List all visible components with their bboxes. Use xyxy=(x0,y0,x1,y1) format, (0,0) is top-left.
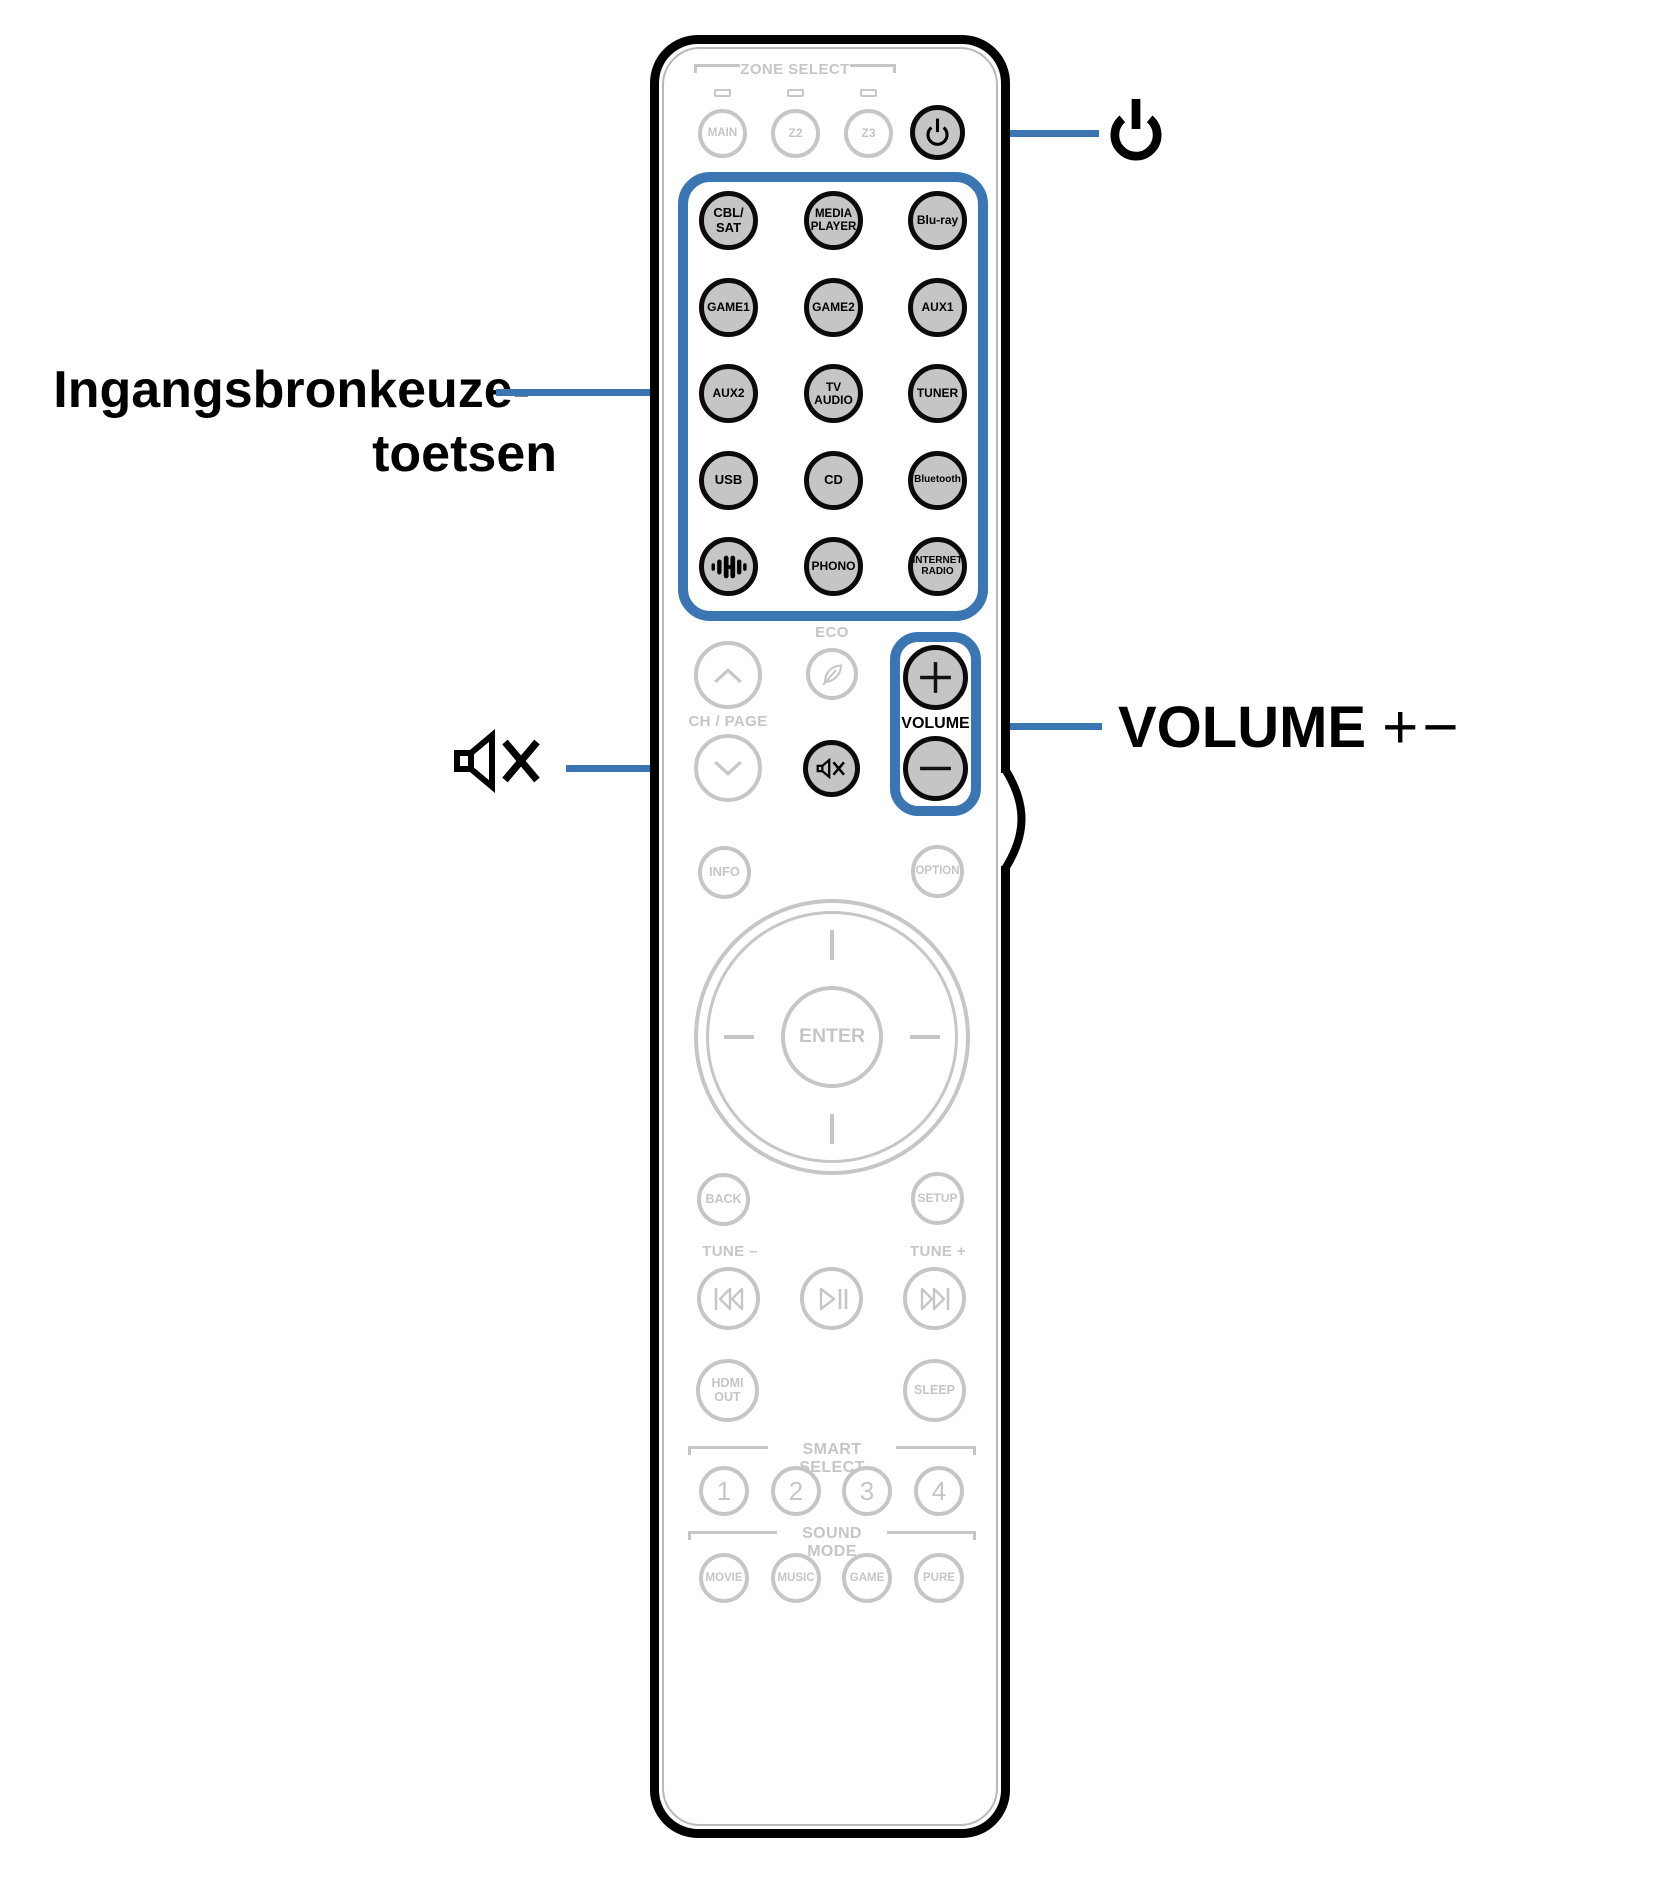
zone-button-z2[interactable]: Z2 xyxy=(771,109,820,158)
channel-page-up-button[interactable] xyxy=(694,641,762,709)
eco-label: ECO xyxy=(802,624,862,641)
plus-icon xyxy=(917,659,954,696)
option-button[interactable]: OPTION xyxy=(911,845,964,898)
sleep-button[interactable]: SLEEP xyxy=(903,1359,966,1422)
volume-down-button[interactable] xyxy=(903,736,968,801)
smart-select-button-1[interactable]: 1 xyxy=(699,1466,749,1516)
power-icon xyxy=(1106,95,1166,167)
leaf-icon xyxy=(819,661,846,688)
chevron-up-icon xyxy=(712,667,744,684)
sound-mode-bracket-right xyxy=(887,1531,976,1540)
setup-button[interactable]: SETUP xyxy=(911,1172,964,1225)
dpad-down-tick[interactable] xyxy=(830,1114,834,1144)
skip-back-icon xyxy=(711,1286,747,1312)
input-button-aux2[interactable]: AUX2 xyxy=(699,364,758,423)
volume-up-button[interactable] xyxy=(903,645,968,710)
volume-button-label: VOLUME xyxy=(895,715,976,733)
play-pause-icon xyxy=(814,1286,850,1312)
sound-mode-button-music[interactable]: MUSIC xyxy=(771,1553,821,1603)
volume-annotation-text: VOLUME xyxy=(1118,694,1366,761)
main-zone-led xyxy=(714,89,731,97)
tune-plus-label: TUNE + xyxy=(878,1243,998,1260)
dpad-up-tick[interactable] xyxy=(830,930,834,960)
input-button-internet-radio[interactable]: INTERNET RADIO xyxy=(908,537,967,596)
power-button[interactable] xyxy=(910,105,965,160)
sound-mode-button-movie[interactable]: MOVIE xyxy=(699,1553,749,1603)
input-button-tuner[interactable]: TUNER xyxy=(908,364,967,423)
eco-button[interactable] xyxy=(806,648,858,700)
skip-back-button[interactable] xyxy=(697,1267,760,1330)
zone2-led xyxy=(787,89,804,97)
input-button-bluetooth[interactable]: Bluetooth xyxy=(908,451,967,510)
smart-select-bracket-left xyxy=(688,1446,768,1455)
input-button-game1[interactable]: GAME1 xyxy=(699,278,758,337)
hdmi-out-button[interactable]: HDMI OUT xyxy=(696,1359,759,1422)
remote-control-diagram: Ingangsbronkeuze- toetsen VOLUME +− ZONE… xyxy=(0,0,1665,1878)
volume-annotation-plus-minus: +− xyxy=(1382,692,1462,763)
input-button-game2[interactable]: GAME2 xyxy=(804,278,863,337)
input-button-cd[interactable]: CD xyxy=(804,451,863,510)
play-pause-button[interactable] xyxy=(800,1267,863,1330)
input-button-tv-audio[interactable]: TV AUDIO xyxy=(804,364,863,423)
mute-button-icon xyxy=(816,758,847,779)
input-button-usb[interactable]: USB xyxy=(699,451,758,510)
zone-select-bracket-right xyxy=(850,64,896,73)
zone-button-z3[interactable]: Z3 xyxy=(844,109,893,158)
chevron-down-icon xyxy=(712,760,744,777)
sound-mode-button-pure[interactable]: PURE xyxy=(914,1553,964,1603)
input-sources-annotation-line1: Ingangsbronkeuze- xyxy=(30,360,530,420)
enter-button[interactable]: ENTER xyxy=(781,986,883,1088)
back-button[interactable]: BACK xyxy=(697,1173,750,1226)
info-button[interactable]: INFO xyxy=(698,846,751,899)
sound-mode-bracket-left xyxy=(688,1531,777,1540)
sound-mode-button-game[interactable]: GAME xyxy=(842,1553,892,1603)
skip-forward-button[interactable] xyxy=(903,1267,966,1330)
dpad-left-tick[interactable] xyxy=(724,1035,754,1039)
mute-button[interactable] xyxy=(803,740,860,797)
input-button-heos[interactable] xyxy=(699,537,758,596)
input-button-cbl-sat[interactable]: CBL/ SAT xyxy=(699,191,758,250)
channel-page-down-button[interactable] xyxy=(694,734,762,802)
input-button-media-player[interactable]: MEDIA PLAYER xyxy=(804,191,863,250)
tune-minus-label: TUNE – xyxy=(670,1243,790,1260)
smart-select-button-3[interactable]: 3 xyxy=(842,1466,892,1516)
smart-select-button-2[interactable]: 2 xyxy=(771,1466,821,1516)
zone3-led xyxy=(860,89,877,97)
input-button-blu-ray[interactable]: Blu-ray xyxy=(908,191,967,250)
smart-select-bracket-right xyxy=(896,1446,976,1455)
heos-icon xyxy=(710,550,748,584)
grip-bump xyxy=(997,762,1033,876)
zone-button-main[interactable]: MAIN xyxy=(698,109,747,158)
input-button-aux1[interactable]: AUX1 xyxy=(908,278,967,337)
dpad-right-tick[interactable] xyxy=(910,1035,940,1039)
minus-icon xyxy=(917,750,954,787)
channel-page-label: CH / PAGE xyxy=(668,713,788,730)
input-button-phono[interactable]: PHONO xyxy=(804,537,863,596)
volume-annotation: VOLUME +− xyxy=(1118,690,1463,764)
input-sources-annotation-line2: toetsen xyxy=(30,424,557,484)
smart-select-button-4[interactable]: 4 xyxy=(914,1466,964,1516)
skip-forward-icon xyxy=(917,1286,953,1312)
power-button-icon xyxy=(924,117,951,149)
mute-icon xyxy=(452,729,546,793)
